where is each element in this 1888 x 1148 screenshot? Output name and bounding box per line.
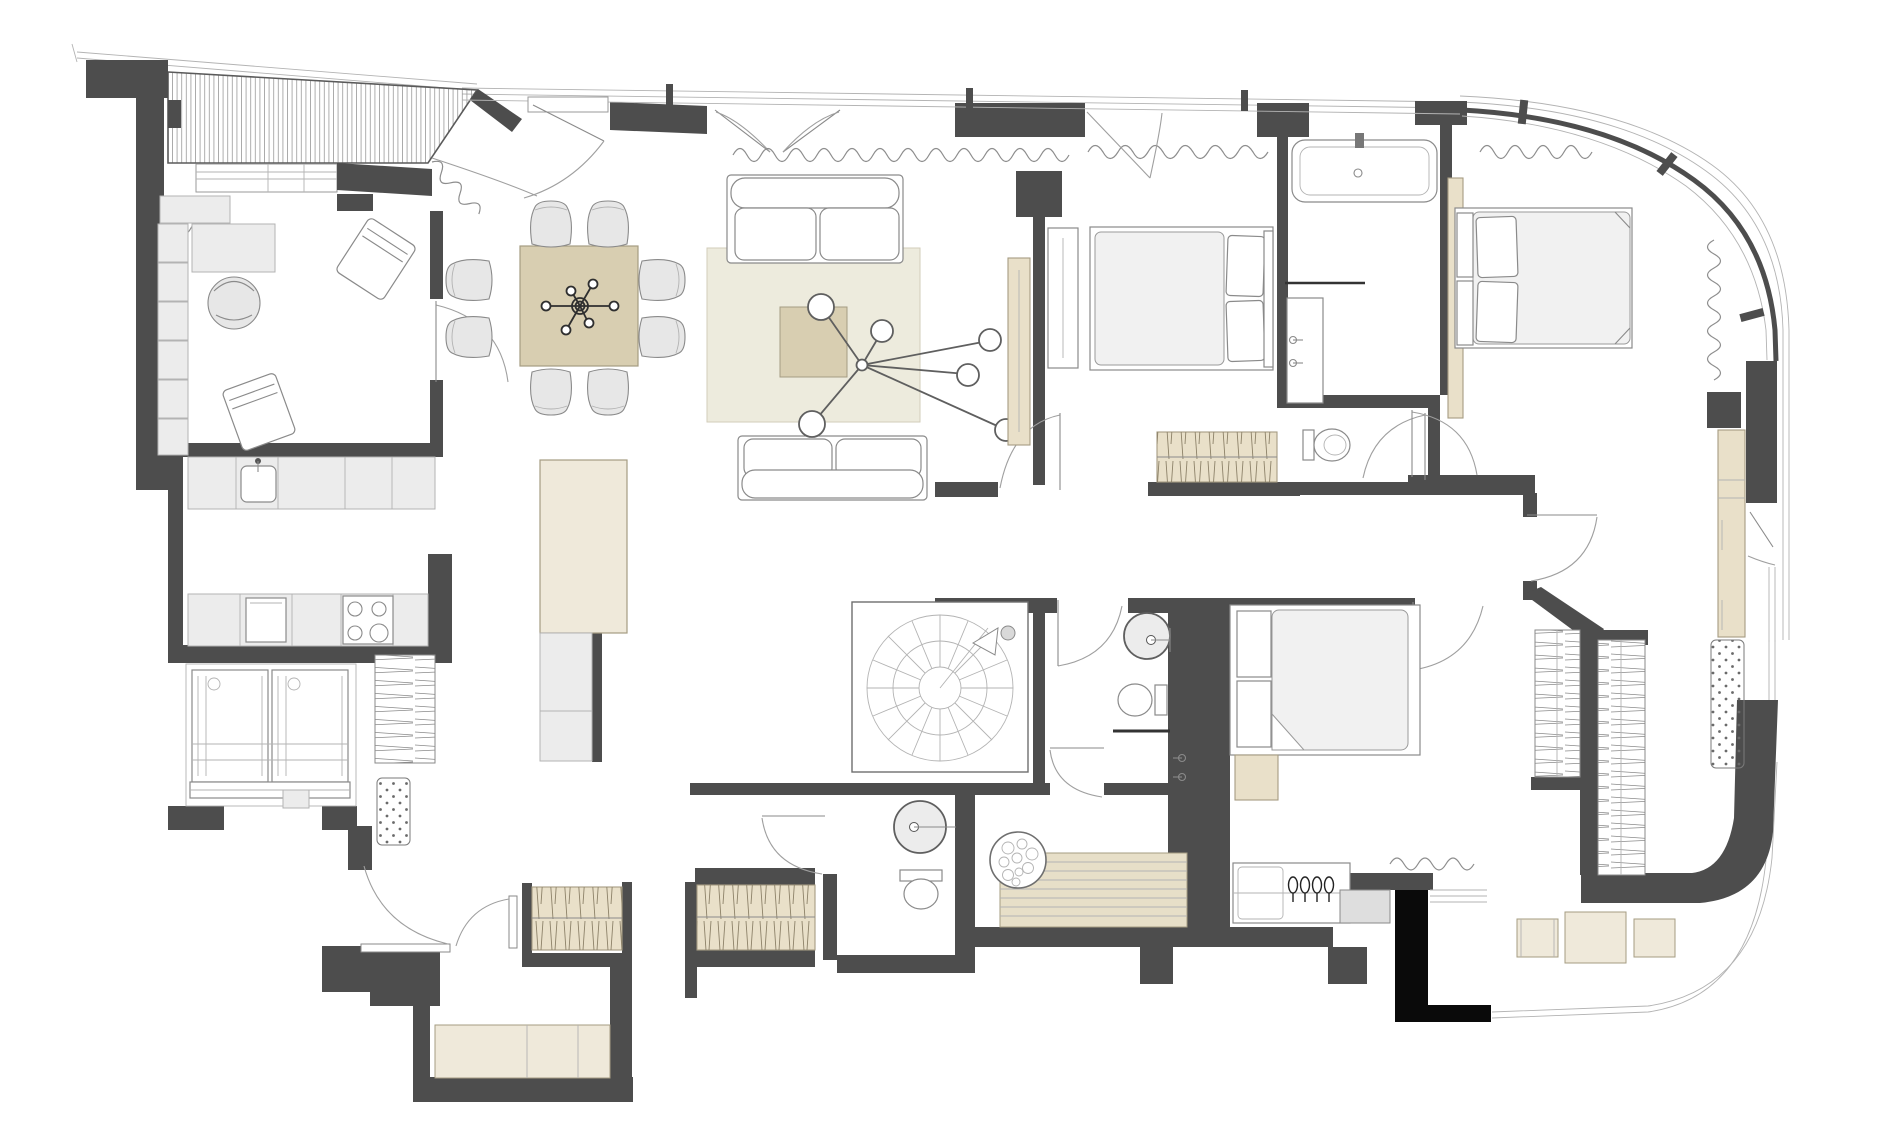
toilet — [1118, 684, 1167, 716]
dresser — [1048, 228, 1078, 368]
closet-hatch — [532, 887, 622, 950]
window-sill — [1430, 890, 1487, 902]
terrace-deck — [168, 72, 477, 163]
upper-counter — [188, 457, 435, 509]
floor-plan-drawing — [0, 0, 1888, 1148]
sofa — [738, 436, 927, 500]
toilet — [1303, 429, 1350, 461]
lower-counter — [188, 594, 428, 646]
vanity-counter — [1287, 298, 1323, 403]
terrace-planter — [168, 100, 181, 128]
spiral-stair — [852, 602, 1028, 772]
floor-plan-page — [0, 0, 1888, 1148]
double-bed — [1455, 208, 1632, 348]
glass-mullion-tick — [1739, 308, 1764, 322]
dining-area — [446, 201, 685, 415]
armchair — [208, 277, 260, 329]
shoe-cabinet — [435, 1025, 610, 1078]
vanity-counter — [1233, 863, 1350, 923]
curtain-wave — [1480, 146, 1592, 159]
sideboard — [1008, 258, 1030, 445]
curtain-wave — [1708, 240, 1721, 380]
cooktop — [343, 596, 393, 644]
curtain-wave — [1088, 146, 1268, 159]
glass-mullion-tick — [1518, 100, 1528, 125]
doormat — [1711, 640, 1744, 768]
study-room — [158, 196, 417, 455]
armchair — [335, 217, 417, 301]
washing-machines — [192, 670, 348, 782]
dressing-room — [1535, 430, 1745, 875]
glass-mullion-tick — [1656, 152, 1677, 176]
wardrobe-hatch — [1157, 432, 1277, 482]
kitchen-island — [540, 460, 627, 761]
armchair — [222, 372, 297, 451]
bedroom-1 — [1048, 227, 1277, 482]
toilet — [900, 870, 942, 909]
ensuite-bathroom — [1285, 133, 1437, 461]
shelf-unit — [160, 196, 230, 223]
bathtub — [1292, 133, 1437, 202]
oven — [246, 598, 286, 642]
double-bed — [1230, 605, 1420, 755]
balcony — [1517, 912, 1675, 963]
balcony-table — [1565, 912, 1626, 963]
sauna — [990, 832, 1187, 927]
curtain-wave — [733, 149, 1069, 162]
washer — [1340, 890, 1390, 923]
closet-hatch — [1598, 640, 1645, 875]
living-room — [707, 175, 1030, 500]
shower-head — [1124, 613, 1170, 659]
round-sink — [894, 801, 956, 853]
closet-hatch — [697, 885, 815, 950]
black-shaft — [1395, 890, 1491, 1022]
desk — [192, 224, 275, 272]
balcony-stool — [1634, 919, 1675, 957]
shelf-column — [158, 224, 188, 455]
laundry-shelves — [375, 655, 435, 763]
balcony-stool — [1517, 919, 1558, 957]
pebble-shower-floor — [990, 832, 1046, 888]
master-bedroom — [1448, 178, 1632, 418]
tall-cabinet — [1718, 430, 1745, 637]
curtain-wave — [427, 158, 484, 219]
curtain-wave — [1390, 858, 1474, 870]
double-bed — [1090, 227, 1273, 370]
doormat — [377, 778, 410, 845]
closet-hatch — [1535, 630, 1580, 777]
nightstand — [1235, 755, 1278, 800]
terrace-window-band — [196, 164, 337, 192]
sofa — [727, 175, 903, 263]
powder-room — [894, 801, 956, 909]
